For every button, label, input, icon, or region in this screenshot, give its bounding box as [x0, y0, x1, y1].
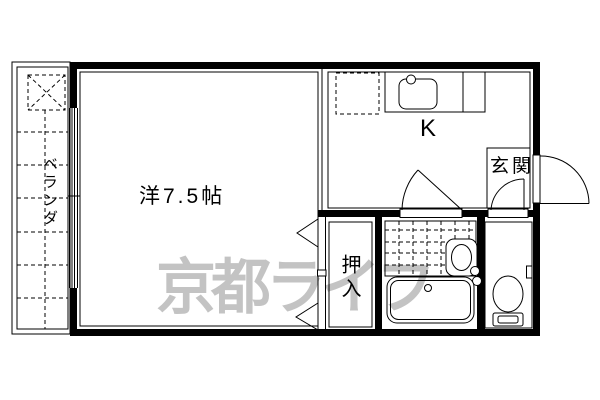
washing-machine-pan-icon — [28, 75, 65, 110]
floorplan: 洋7.5帖 K 玄関 押入 ベランダ 京都ライフ — [0, 0, 600, 400]
toilet-room — [485, 222, 532, 328]
kitchen-label: K — [413, 117, 443, 141]
floorplan-drawing — [0, 0, 600, 400]
wall-left-lower — [70, 288, 77, 336]
toilet-door-icon — [488, 179, 528, 218]
wall-top — [70, 62, 540, 69]
wall-mid-horizontal-b — [462, 210, 488, 217]
paper-holder-icon — [527, 266, 533, 278]
wall-bottom — [70, 329, 540, 336]
bathroom-door-icon — [400, 170, 462, 218]
wall-mid-horizontal-c — [528, 210, 540, 217]
main-room-label: 洋7.5帖 — [139, 186, 225, 207]
wall-left-upper — [70, 62, 77, 108]
wall-right-upper — [533, 62, 540, 155]
entrance-door-icon — [540, 156, 590, 204]
kitchen-sink-icon — [399, 79, 437, 109]
entrance-label: 玄関 — [490, 157, 534, 176]
entrance-door-sill — [533, 155, 540, 203]
balcony-label: ベランダ — [42, 156, 57, 228]
watermark: 京都ライフ — [156, 258, 431, 318]
closet-door-chevron-icon — [297, 219, 318, 247]
wall-mid-horizontal-a — [318, 210, 400, 217]
wall-right-lower — [533, 203, 540, 336]
sliding-window-icon — [68, 108, 80, 288]
refrigerator-space-icon — [336, 73, 379, 114]
faucet-icon — [407, 75, 416, 84]
toilet-icon — [493, 276, 523, 326]
